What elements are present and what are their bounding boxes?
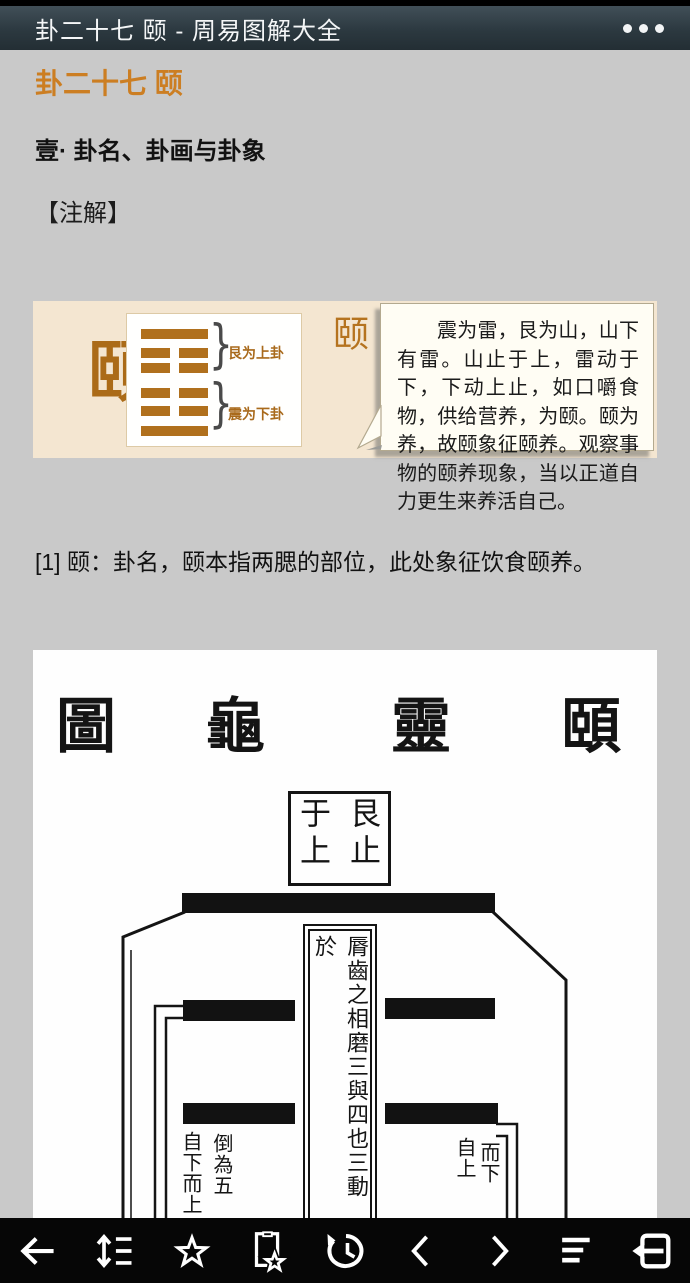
back-button[interactable]: [0, 1218, 77, 1283]
history-button[interactable]: [307, 1218, 384, 1283]
history-clock-icon: [321, 1227, 369, 1275]
more-menu-icon[interactable]: [623, 24, 664, 33]
bookmark-page-star-icon: [245, 1228, 291, 1274]
turtle-diagram: 圖 龜 靈 頤 艮止于上 脣齒之相磨三與四也三動於 自下而上 倒為五 自上 而下: [33, 650, 657, 1218]
reader-toolbar: [0, 1218, 690, 1283]
line-spacing-button[interactable]: [77, 1218, 154, 1283]
bubble-text: 震为雷，艮为山，山下有雷。山止于上，雷动于下，下动上止，如口嚼食物，供给营养，为…: [397, 317, 639, 517]
chapter-heading: 卦二十七 颐: [35, 62, 183, 102]
lower-trigram-label: 震为下卦: [228, 404, 284, 424]
hexagram-line-broken: [141, 348, 208, 358]
speech-bubble: 震为雷，艮为山，山下有雷。山止于上，雷动于下，下动上止，如口嚼食物，供给营养，为…: [380, 303, 654, 451]
favorite-button[interactable]: [153, 1218, 230, 1283]
text-lines-icon: [553, 1229, 597, 1273]
chevron-left-icon: [400, 1229, 444, 1273]
hexagram-card: } } 艮为上卦 震为下卦: [126, 313, 302, 447]
next-page-button[interactable]: [460, 1218, 537, 1283]
hexagram-panel: 颐[1] } } 艮为上卦 震为下卦 山雷颐 震为雷，艮为山，山下有雷。山止于上…: [33, 301, 657, 458]
previous-page-button[interactable]: [383, 1218, 460, 1283]
back-arrow-icon: [16, 1229, 60, 1273]
left-outer-label: 自下而上: [176, 1131, 205, 1215]
section-heading: 壹· 卦名、卦画与卦象: [35, 131, 266, 166]
title-bar: 卦二十七 颐 - 周易图解大全: [0, 6, 690, 50]
center-column-text: 脣齒之相磨三與四也三動於: [308, 931, 372, 1218]
bubble-tail: [356, 404, 382, 452]
left-inner-label: 倒為五: [207, 1133, 236, 1196]
page-title: 卦二十七 颐 - 周易图解大全: [35, 11, 623, 46]
exit-reader-button[interactable]: [613, 1218, 690, 1283]
upper-trigram-label: 艮为上卦: [228, 343, 284, 363]
chevron-right-icon: [476, 1229, 520, 1273]
contents-button[interactable]: [537, 1218, 614, 1283]
star-icon: [169, 1228, 215, 1274]
hexagram-line-broken: [141, 388, 208, 398]
line-spacing-icon: [93, 1229, 137, 1273]
footnote-text: [1] 颐：卦名，颐本指两腮的部位，此处象征饮食颐养。: [35, 546, 660, 579]
right-right-label: 而下: [474, 1142, 503, 1184]
annotation-label: 【注解】: [35, 193, 131, 228]
hexagram-line-solid: [141, 329, 208, 339]
add-bookmark-button[interactable]: [230, 1218, 307, 1283]
exit-icon: [629, 1228, 675, 1274]
reader-app: 卦二十七 颐 - 周易图解大全 卦二十七 颐 壹· 卦名、卦画与卦象 【注解】 …: [0, 0, 690, 1283]
center-column: 脣齒之相磨三與四也三動於: [303, 924, 377, 1218]
hexagram-line-solid: [141, 426, 208, 436]
hexagram-line-broken: [141, 363, 208, 373]
hexagram-line-broken: [141, 406, 208, 416]
